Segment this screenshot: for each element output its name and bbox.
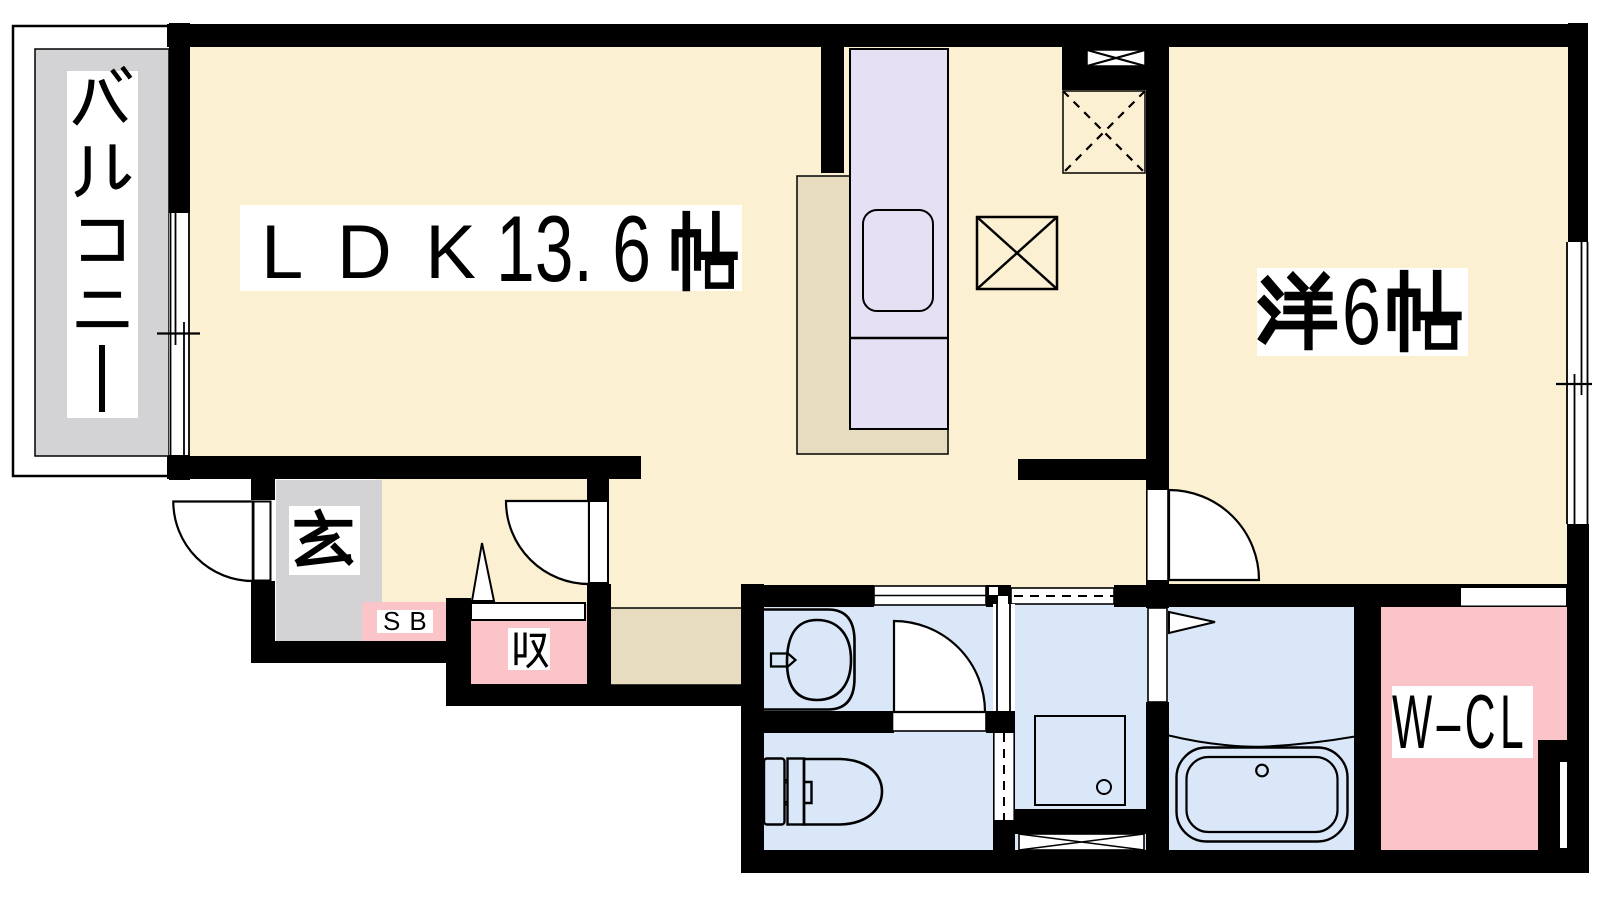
- svg-text:SB: SB: [383, 606, 436, 636]
- svg-text:W–CL: W–CL: [1392, 680, 1528, 765]
- svg-text:6: 6: [1342, 259, 1381, 364]
- svg-text:LDK: LDK: [261, 210, 476, 295]
- svg-text:13. 6: 13. 6: [496, 196, 651, 301]
